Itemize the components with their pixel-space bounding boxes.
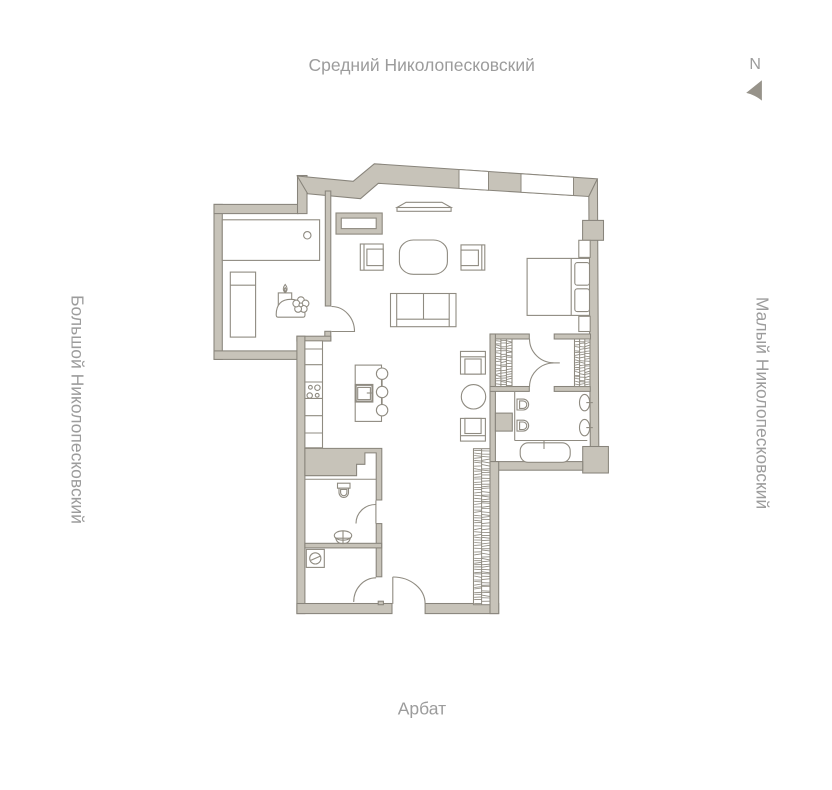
svg-text:Арбат: Арбат [398, 698, 446, 718]
svg-text:Большой Николопесковский: Большой Николопесковский [67, 295, 87, 524]
svg-text:Средний Николопесковский: Средний Николопесковский [309, 55, 535, 75]
svg-text:N: N [749, 56, 761, 73]
svg-text:Малый Николопесковский: Малый Николопесковский [753, 297, 773, 509]
